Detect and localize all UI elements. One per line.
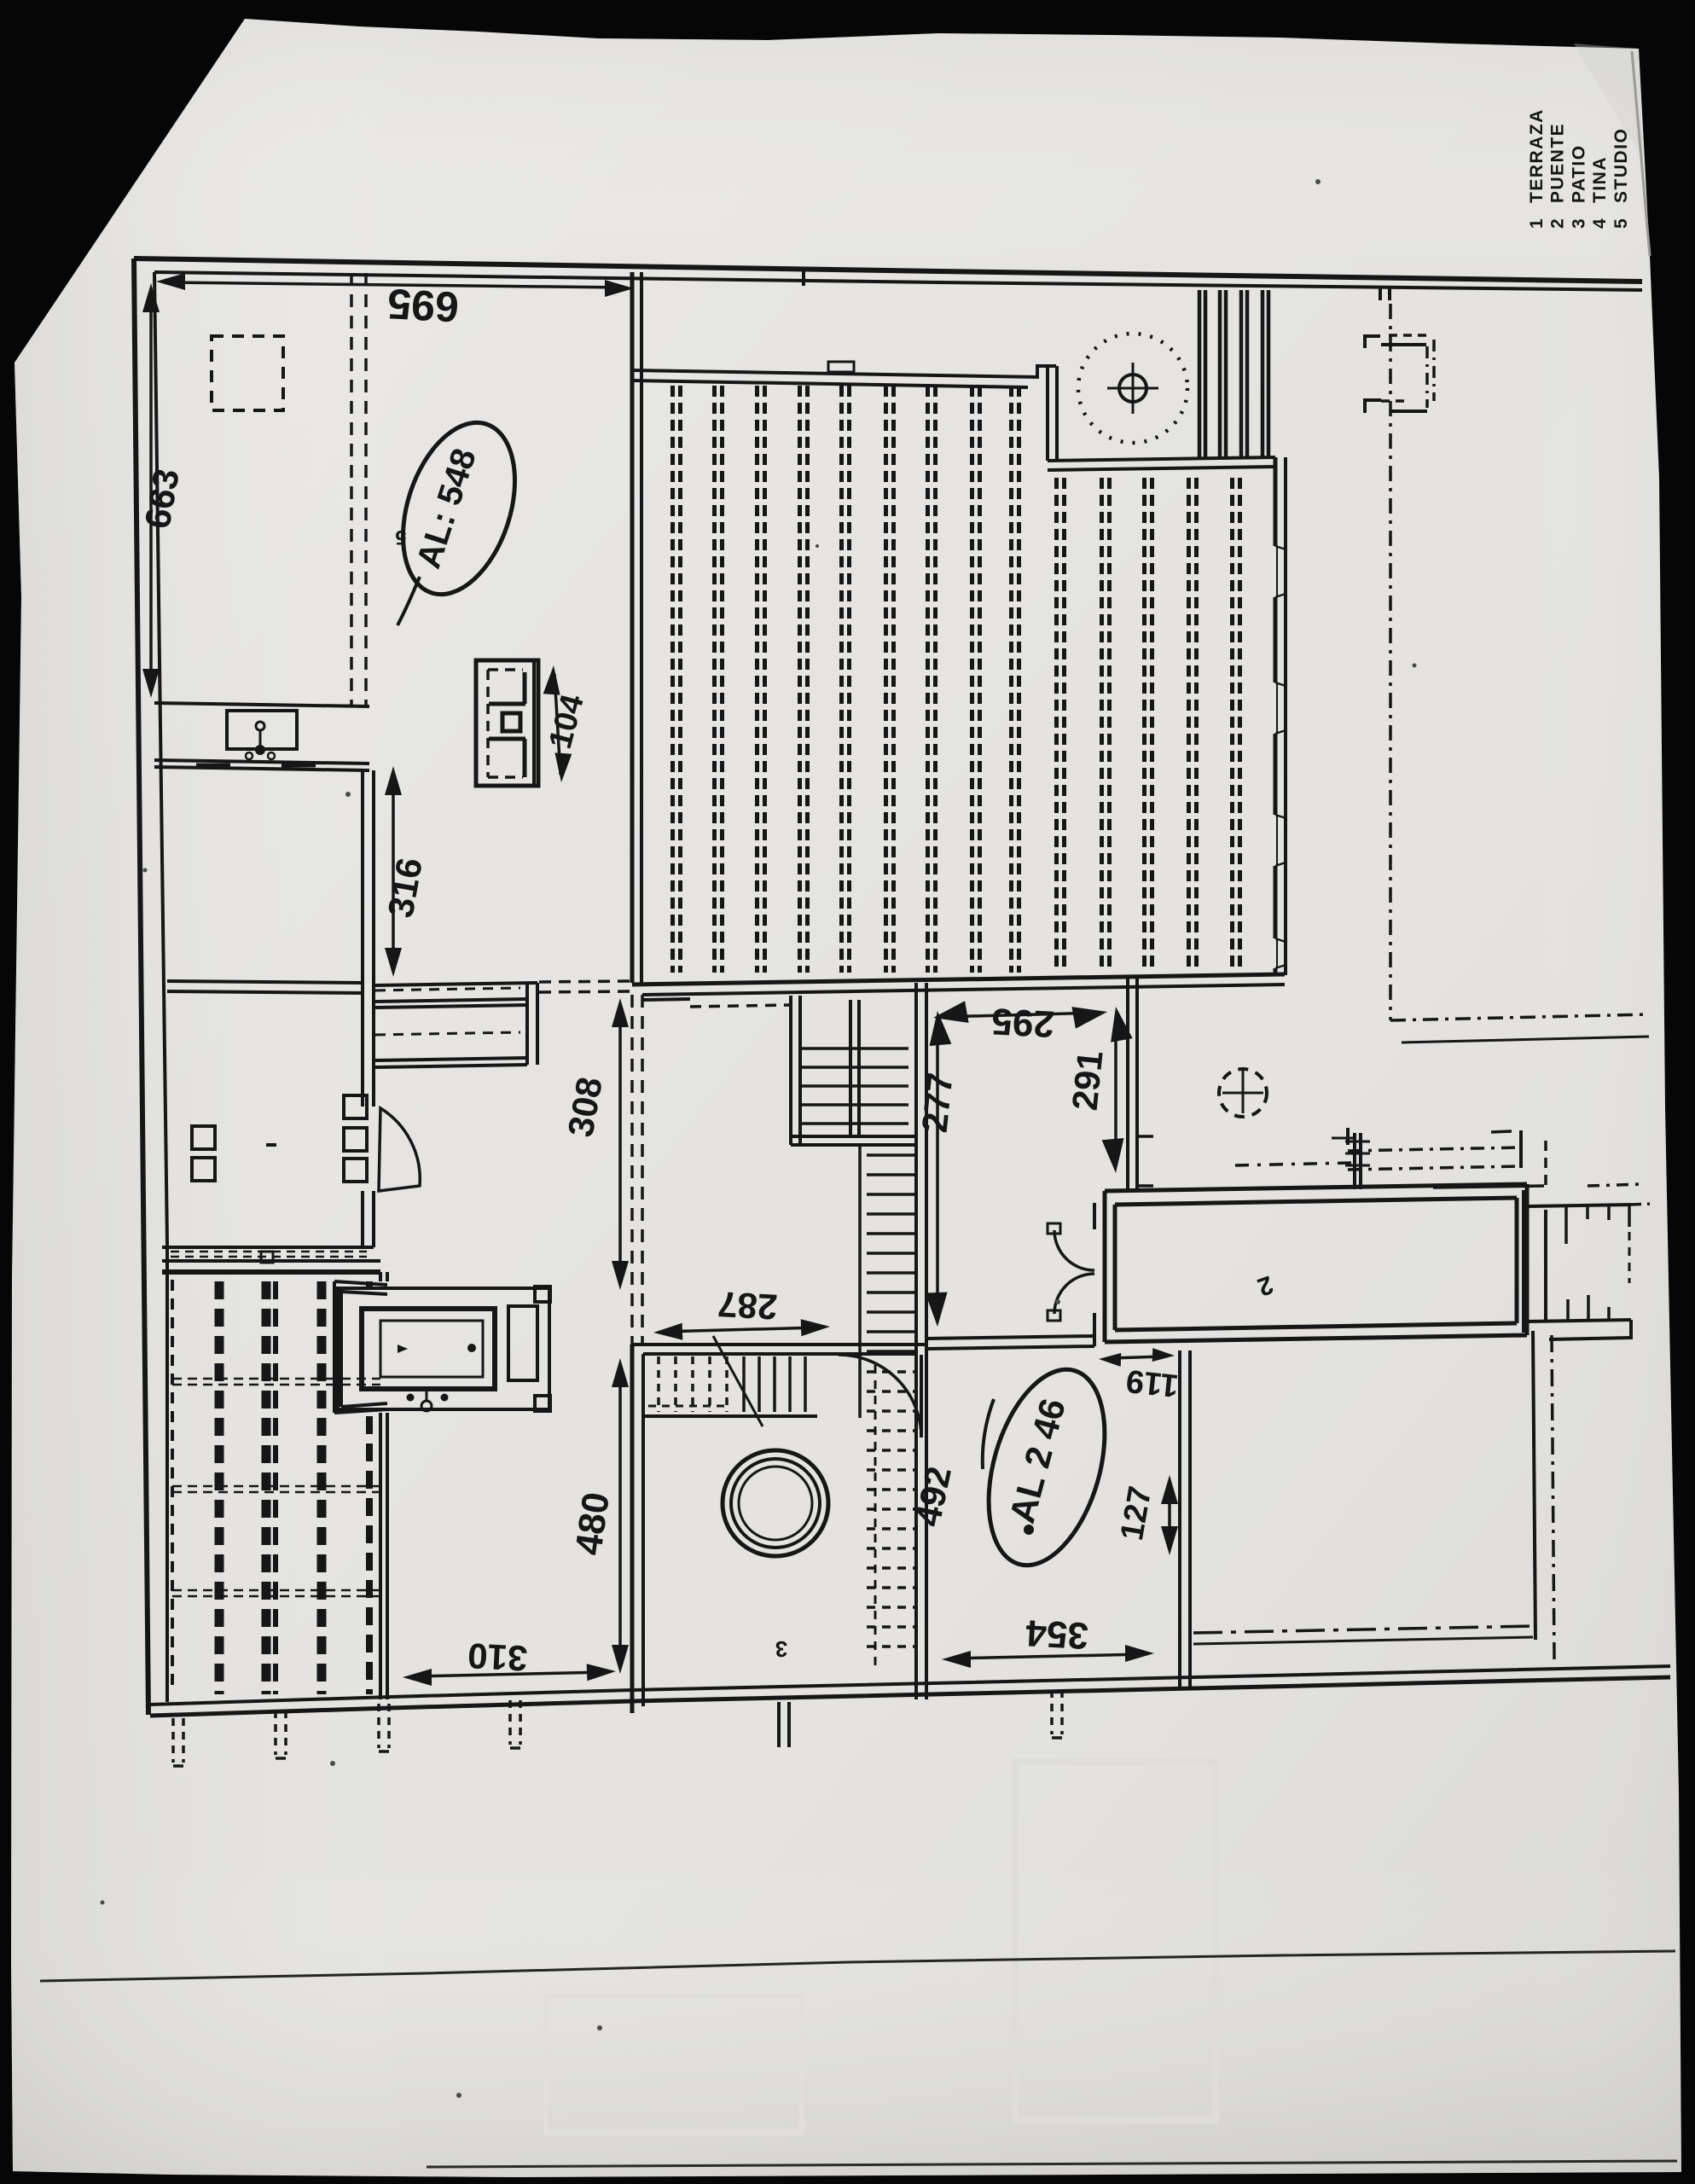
svg-text:TERRAZA: TERRAZA bbox=[1527, 108, 1547, 203]
svg-text:354: 354 bbox=[1025, 1612, 1089, 1657]
svg-text:695: 695 bbox=[386, 280, 460, 331]
svg-text:PATIO: PATIO bbox=[1569, 144, 1588, 203]
svg-text:1: 1 bbox=[1527, 218, 1547, 229]
svg-text:480: 480 bbox=[567, 1490, 618, 1558]
svg-text:PUENTE: PUENTE bbox=[1548, 123, 1568, 203]
svg-text:119: 119 bbox=[1124, 1362, 1180, 1403]
svg-text:5: 5 bbox=[395, 526, 406, 549]
svg-text:STUDIO: STUDIO bbox=[1611, 128, 1631, 203]
svg-text:3: 3 bbox=[1569, 218, 1588, 229]
svg-text:310: 310 bbox=[467, 1635, 528, 1679]
svg-text:4: 4 bbox=[1590, 218, 1610, 229]
svg-text:291: 291 bbox=[1065, 1048, 1111, 1112]
svg-text:5: 5 bbox=[1611, 218, 1631, 229]
svg-text:287: 287 bbox=[717, 1284, 778, 1327]
svg-text:295: 295 bbox=[990, 1000, 1055, 1045]
svg-text:2: 2 bbox=[1548, 218, 1568, 229]
svg-text:277: 277 bbox=[914, 1071, 961, 1135]
svg-text:TINA: TINA bbox=[1590, 156, 1610, 203]
svg-text:3: 3 bbox=[775, 1636, 787, 1662]
